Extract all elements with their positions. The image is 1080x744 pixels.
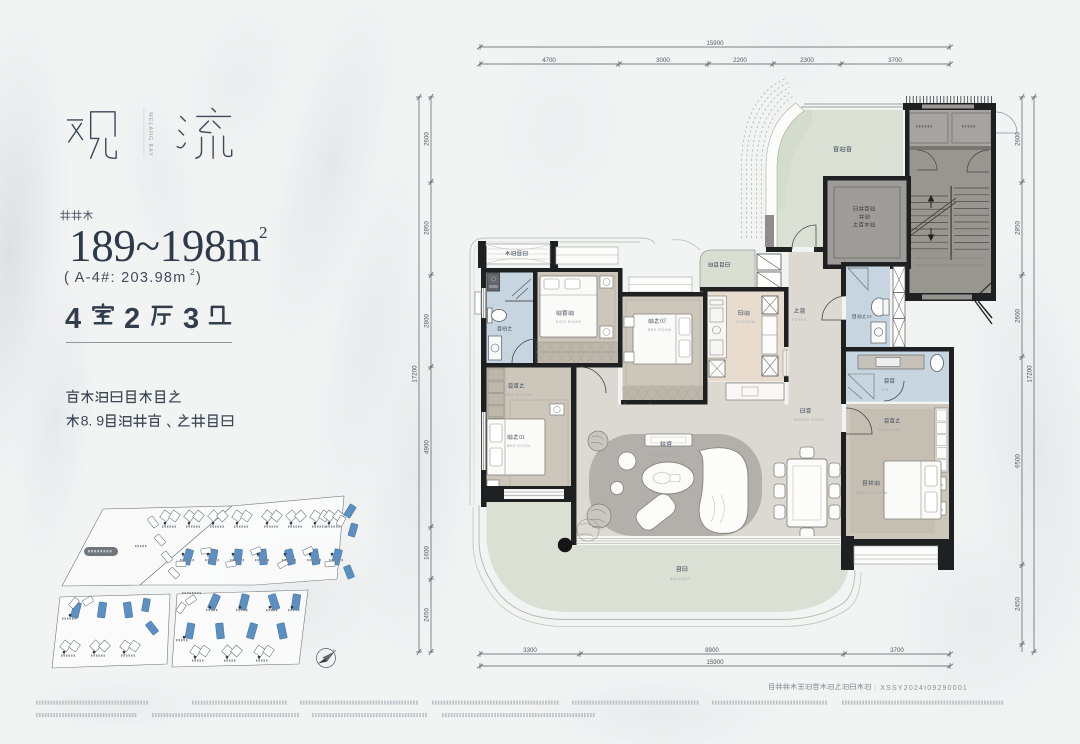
svg-text:LIVING ROOM: LIVING ROOM (648, 453, 677, 457)
svg-text:2850: 2850 (1015, 221, 1022, 235)
svg-text:8900: 8900 (705, 647, 719, 654)
svg-text:2: 2 (259, 223, 268, 242)
svg-text:1: 1 (522, 435, 525, 441)
svg-text:2600: 2600 (1015, 132, 1022, 146)
svg-text:KITCHEN: KITCHEN (736, 320, 755, 324)
svg-text:MASTER ROOM: MASTER ROOM (856, 491, 888, 495)
svg-text:: XSSY2024I09290001: : XSSY2024I09290001 (874, 685, 968, 692)
svg-text:15900: 15900 (706, 659, 724, 666)
svg-text:4900: 4900 (424, 440, 431, 454)
svg-text:2: 2 (663, 319, 666, 325)
svg-text:BALCONY: BALCONY (670, 577, 691, 581)
svg-text:2800: 2800 (424, 314, 431, 328)
svg-text:3700: 3700 (888, 57, 902, 64)
svg-text:2: 2 (124, 303, 140, 335)
svg-text:6500: 6500 (1015, 454, 1022, 468)
svg-text:3000: 3000 (656, 57, 670, 64)
svg-text:4700: 4700 (542, 57, 556, 64)
svg-text:4: 4 (65, 303, 81, 335)
svg-text:3: 3 (183, 303, 199, 335)
svg-text:): ) (196, 270, 201, 286)
svg-text:189~198m: 189~198m (69, 221, 261, 271)
svg-text:M.B: M.B (882, 388, 889, 392)
svg-text:WARDROBE: WARDROBE (878, 428, 901, 432)
svg-text:1600: 1600 (424, 546, 431, 560)
svg-text:WELANG BAY: WELANG BAY (147, 112, 153, 157)
svg-text:17200: 17200 (412, 365, 419, 383)
svg-text:2450: 2450 (424, 608, 431, 622)
svg-text:9: 9 (96, 413, 104, 429)
svg-text:2450: 2450 (1015, 597, 1022, 611)
svg-text:WALK-IN CLOS: WALK-IN CLOS (503, 393, 532, 397)
svg-text:FOYER: FOYER (792, 318, 807, 322)
svg-text:KIDS ROOM: KIDS ROOM (556, 320, 581, 324)
svg-text:N: N (333, 648, 336, 653)
svg-text:.: . (88, 413, 92, 429)
svg-text:( A-4#: 203.98m: ( A-4#: 203.98m (64, 270, 187, 286)
svg-text:2: 2 (190, 267, 195, 277)
svg-text:2200: 2200 (733, 57, 747, 64)
svg-text:3700: 3700 (890, 647, 904, 654)
svg-text:2300: 2300 (800, 57, 814, 64)
svg-text:3300: 3300 (523, 647, 537, 654)
svg-text:BED ROOM: BED ROOM (648, 328, 672, 332)
svg-text:2600: 2600 (1015, 309, 1022, 323)
svg-text:8: 8 (81, 413, 89, 429)
svg-text:2600: 2600 (424, 132, 431, 146)
svg-text:2850: 2850 (424, 221, 431, 235)
svg-text:BED ROOM: BED ROOM (507, 444, 531, 448)
svg-text:15900: 15900 (706, 40, 724, 47)
svg-text:17200: 17200 (1027, 365, 1034, 383)
svg-text:DINING ROOM: DINING ROOM (794, 418, 824, 422)
